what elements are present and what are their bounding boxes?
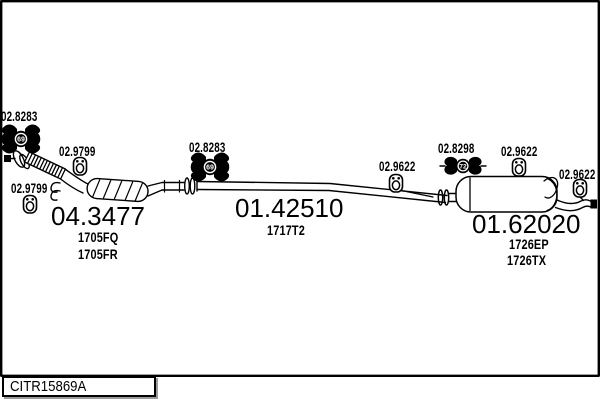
label-hanger-mid: 02.9622 bbox=[379, 159, 415, 173]
hanger-front-upper-icon bbox=[74, 158, 87, 176]
rear-muffler-body bbox=[438, 177, 557, 213]
gasket-mid-badge: 69 bbox=[206, 165, 214, 172]
label-clamp-rear: 02.8298 bbox=[438, 141, 474, 155]
clamp-rear-icon: 72 bbox=[440, 157, 486, 175]
hanger-tail-icon bbox=[574, 180, 587, 198]
drawing-code-box: CITR15869A bbox=[2, 376, 156, 397]
catalytic-converter-body bbox=[86, 178, 148, 202]
drawing-code: CITR15869A bbox=[10, 379, 86, 394]
rear-muffler-oe-ref-2: 1726TX bbox=[507, 253, 546, 267]
rear-muffler-oe-ref-1: 1726EP bbox=[509, 237, 549, 251]
gasket-front-icon: 69 bbox=[2, 125, 41, 154]
label-hanger-front-upper: 02.9799 bbox=[59, 144, 95, 158]
rear-muffler-part-number: 01.62020 bbox=[472, 211, 580, 237]
exhaust-system-diagram: 69 69 72 02.8283 02.9799 02.9799 02.8283… bbox=[0, 0, 600, 400]
label-hanger-tail: 02.9622 bbox=[559, 167, 595, 181]
gasket-front-badge: 69 bbox=[17, 137, 25, 144]
mid-pipe-oe-ref-1: 1717T2 bbox=[267, 223, 305, 237]
catalyst-oe-ref-2: 1705FR bbox=[78, 247, 118, 261]
label-hanger-rear-top: 02.9622 bbox=[501, 144, 537, 158]
hanger-front-lower-icon bbox=[24, 196, 37, 214]
hanger-mid-icon bbox=[390, 175, 403, 193]
gasket-mid-icon: 69 bbox=[191, 153, 230, 182]
label-hanger-front-lower: 02.9799 bbox=[11, 181, 47, 195]
catalyst-part-number: 04.3477 bbox=[51, 203, 145, 229]
hanger-rear-top-icon bbox=[513, 159, 526, 177]
catalyst-outlet-pipe bbox=[148, 178, 195, 196]
clamp-rear-badge: 72 bbox=[459, 163, 467, 170]
label-gasket-mid: 02.8283 bbox=[189, 140, 225, 154]
catalyst-oe-ref-1: 1705FQ bbox=[78, 230, 118, 244]
mid-pipe-part-number: 01.42510 bbox=[235, 195, 343, 221]
label-gasket-front: 02.8283 bbox=[1, 109, 37, 123]
